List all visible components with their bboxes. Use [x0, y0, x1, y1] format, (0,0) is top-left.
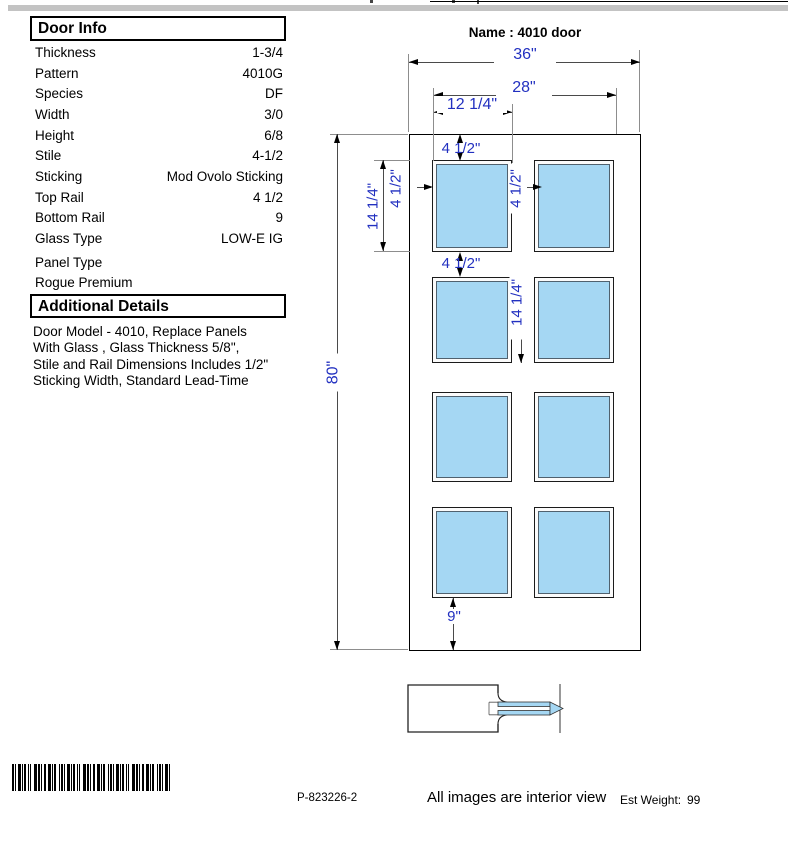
glass	[538, 511, 610, 594]
row-label: Thickness	[35, 45, 96, 60]
dim-lite-height: 14 1/4"	[366, 170, 381, 244]
extension-line	[433, 88, 434, 161]
cropped-text-artifact	[370, 0, 373, 3]
row-label: Species	[35, 86, 83, 101]
dim-cross-rail: 4 1/2"	[437, 256, 485, 271]
table-row: Width3/0	[30, 104, 286, 125]
dim-stile: 4 1/2"	[389, 164, 404, 214]
glass	[436, 281, 508, 359]
row-label: Glass Type	[35, 231, 102, 246]
row-label: Top Rail	[35, 190, 84, 205]
edge-cross-section	[400, 679, 575, 737]
est-weight-value: 99	[687, 793, 700, 807]
additional-details-title: Additional Details	[32, 296, 284, 318]
arrowhead	[533, 184, 542, 190]
row-label: Pattern	[35, 66, 79, 81]
row-label: Stile	[35, 148, 61, 163]
extension-line	[408, 54, 409, 132]
extension-line	[330, 649, 408, 650]
door-drawing	[409, 134, 641, 651]
arrowhead	[380, 242, 386, 251]
table-row: Stile4-1/2	[30, 145, 286, 166]
door-info-table: Thickness1-3/4 Pattern4010G SpeciesDF Wi…	[30, 42, 286, 290]
est-weight-label: Est Weight:	[620, 793, 681, 807]
arrowhead	[518, 354, 524, 363]
table-row: Pattern4010G	[30, 63, 286, 84]
drawing-name: Name : 4010 door	[409, 25, 641, 40]
row-value: 4-1/2	[252, 148, 283, 163]
row-label: Panel Type	[35, 255, 102, 270]
door-spec-sheet: Door Info Thickness1-3/4 Pattern4010G Sp…	[0, 0, 788, 843]
additional-details-text: Door Model - 4010, Replace Panels With G…	[33, 324, 318, 389]
detail-line: With Glass , Glass Thickness 5/8",	[33, 340, 318, 356]
table-row: Panel Type	[30, 252, 286, 273]
extension-line	[330, 134, 408, 135]
arrowhead	[607, 92, 616, 98]
dim-glass-span: 28"	[496, 79, 552, 96]
door-info-header: Door Info	[30, 16, 286, 41]
row-label: Width	[35, 107, 70, 122]
arrowhead	[450, 598, 456, 607]
dimension-line	[383, 160, 384, 251]
row-value: 9	[275, 210, 283, 225]
additional-details-header: Additional Details	[30, 294, 286, 318]
dim-lite-width: 12 1/4"	[437, 96, 507, 113]
barcode	[12, 764, 172, 791]
dimension-line	[337, 134, 338, 650]
row-value: 3/0	[264, 107, 283, 122]
glass-lite	[432, 160, 512, 252]
arrowhead	[631, 59, 640, 65]
extension-line	[374, 251, 410, 252]
glass	[538, 396, 610, 478]
glass-lite	[534, 392, 614, 482]
table-row: Thickness1-3/4	[30, 42, 286, 63]
row-value: 4 1/2	[253, 190, 283, 205]
dim-overall-width: 36"	[494, 46, 556, 63]
glass-lite	[432, 507, 512, 598]
glass-lite	[534, 277, 614, 363]
interior-view-note: All images are interior view	[427, 789, 606, 806]
glass-lite	[432, 277, 512, 363]
arrowhead	[409, 59, 418, 65]
arrowhead	[380, 160, 386, 169]
row-value: Mod Ovolo Sticking	[167, 169, 283, 184]
table-row: Glass TypeLOW-E IG	[30, 228, 286, 249]
arrowhead	[334, 641, 340, 650]
detail-line: Stile and Rail Dimensions Includes 1/2"	[33, 357, 318, 373]
table-row: StickingMod Ovolo Sticking	[30, 166, 286, 187]
extension-line	[512, 104, 513, 163]
detail-line: Sticking Width, Standard Lead-Time	[33, 373, 318, 389]
row-value: DF	[265, 86, 283, 101]
glass	[538, 164, 610, 248]
top-rule	[430, 1, 788, 2]
row-value: LOW-E IG	[221, 231, 283, 246]
table-row: Bottom Rail9	[30, 208, 286, 229]
glass	[436, 164, 508, 248]
divider-bar	[8, 5, 788, 11]
row-label: Bottom Rail	[35, 210, 105, 225]
row-label: Height	[35, 128, 74, 143]
row-value: 4010G	[242, 66, 283, 81]
arrowhead	[450, 641, 456, 650]
extension-line	[616, 88, 617, 134]
table-row: Top Rail4 1/2	[30, 187, 286, 208]
row-value: 6/8	[264, 128, 283, 143]
row-value: 1-3/4	[252, 45, 283, 60]
glass-lite	[432, 392, 512, 482]
glass	[436, 396, 508, 478]
dim-overall-height: 80"	[325, 354, 342, 392]
part-number: P-823226-2	[297, 792, 357, 804]
arrowhead	[334, 134, 340, 143]
table-row: SpeciesDF	[30, 83, 286, 104]
dim-bottom-rail: 9"	[443, 609, 465, 624]
dim-top-rail: 4 1/2"	[437, 141, 485, 156]
dim-lite-height-2: 14 1/4"	[510, 266, 525, 340]
detail-line: Door Model - 4010, Replace Panels	[33, 324, 318, 340]
row-label: Sticking	[35, 169, 82, 184]
table-row: Height6/8	[30, 125, 286, 146]
panel-type-value: Rogue Premium	[30, 275, 286, 290]
dim-mullion: 4 1/2"	[509, 164, 524, 214]
glass	[538, 281, 610, 359]
arrowhead	[424, 184, 433, 190]
glass	[436, 511, 508, 594]
glass-lite	[534, 160, 614, 252]
door-info-title: Door Info	[32, 18, 284, 40]
glass-lite	[534, 507, 614, 598]
